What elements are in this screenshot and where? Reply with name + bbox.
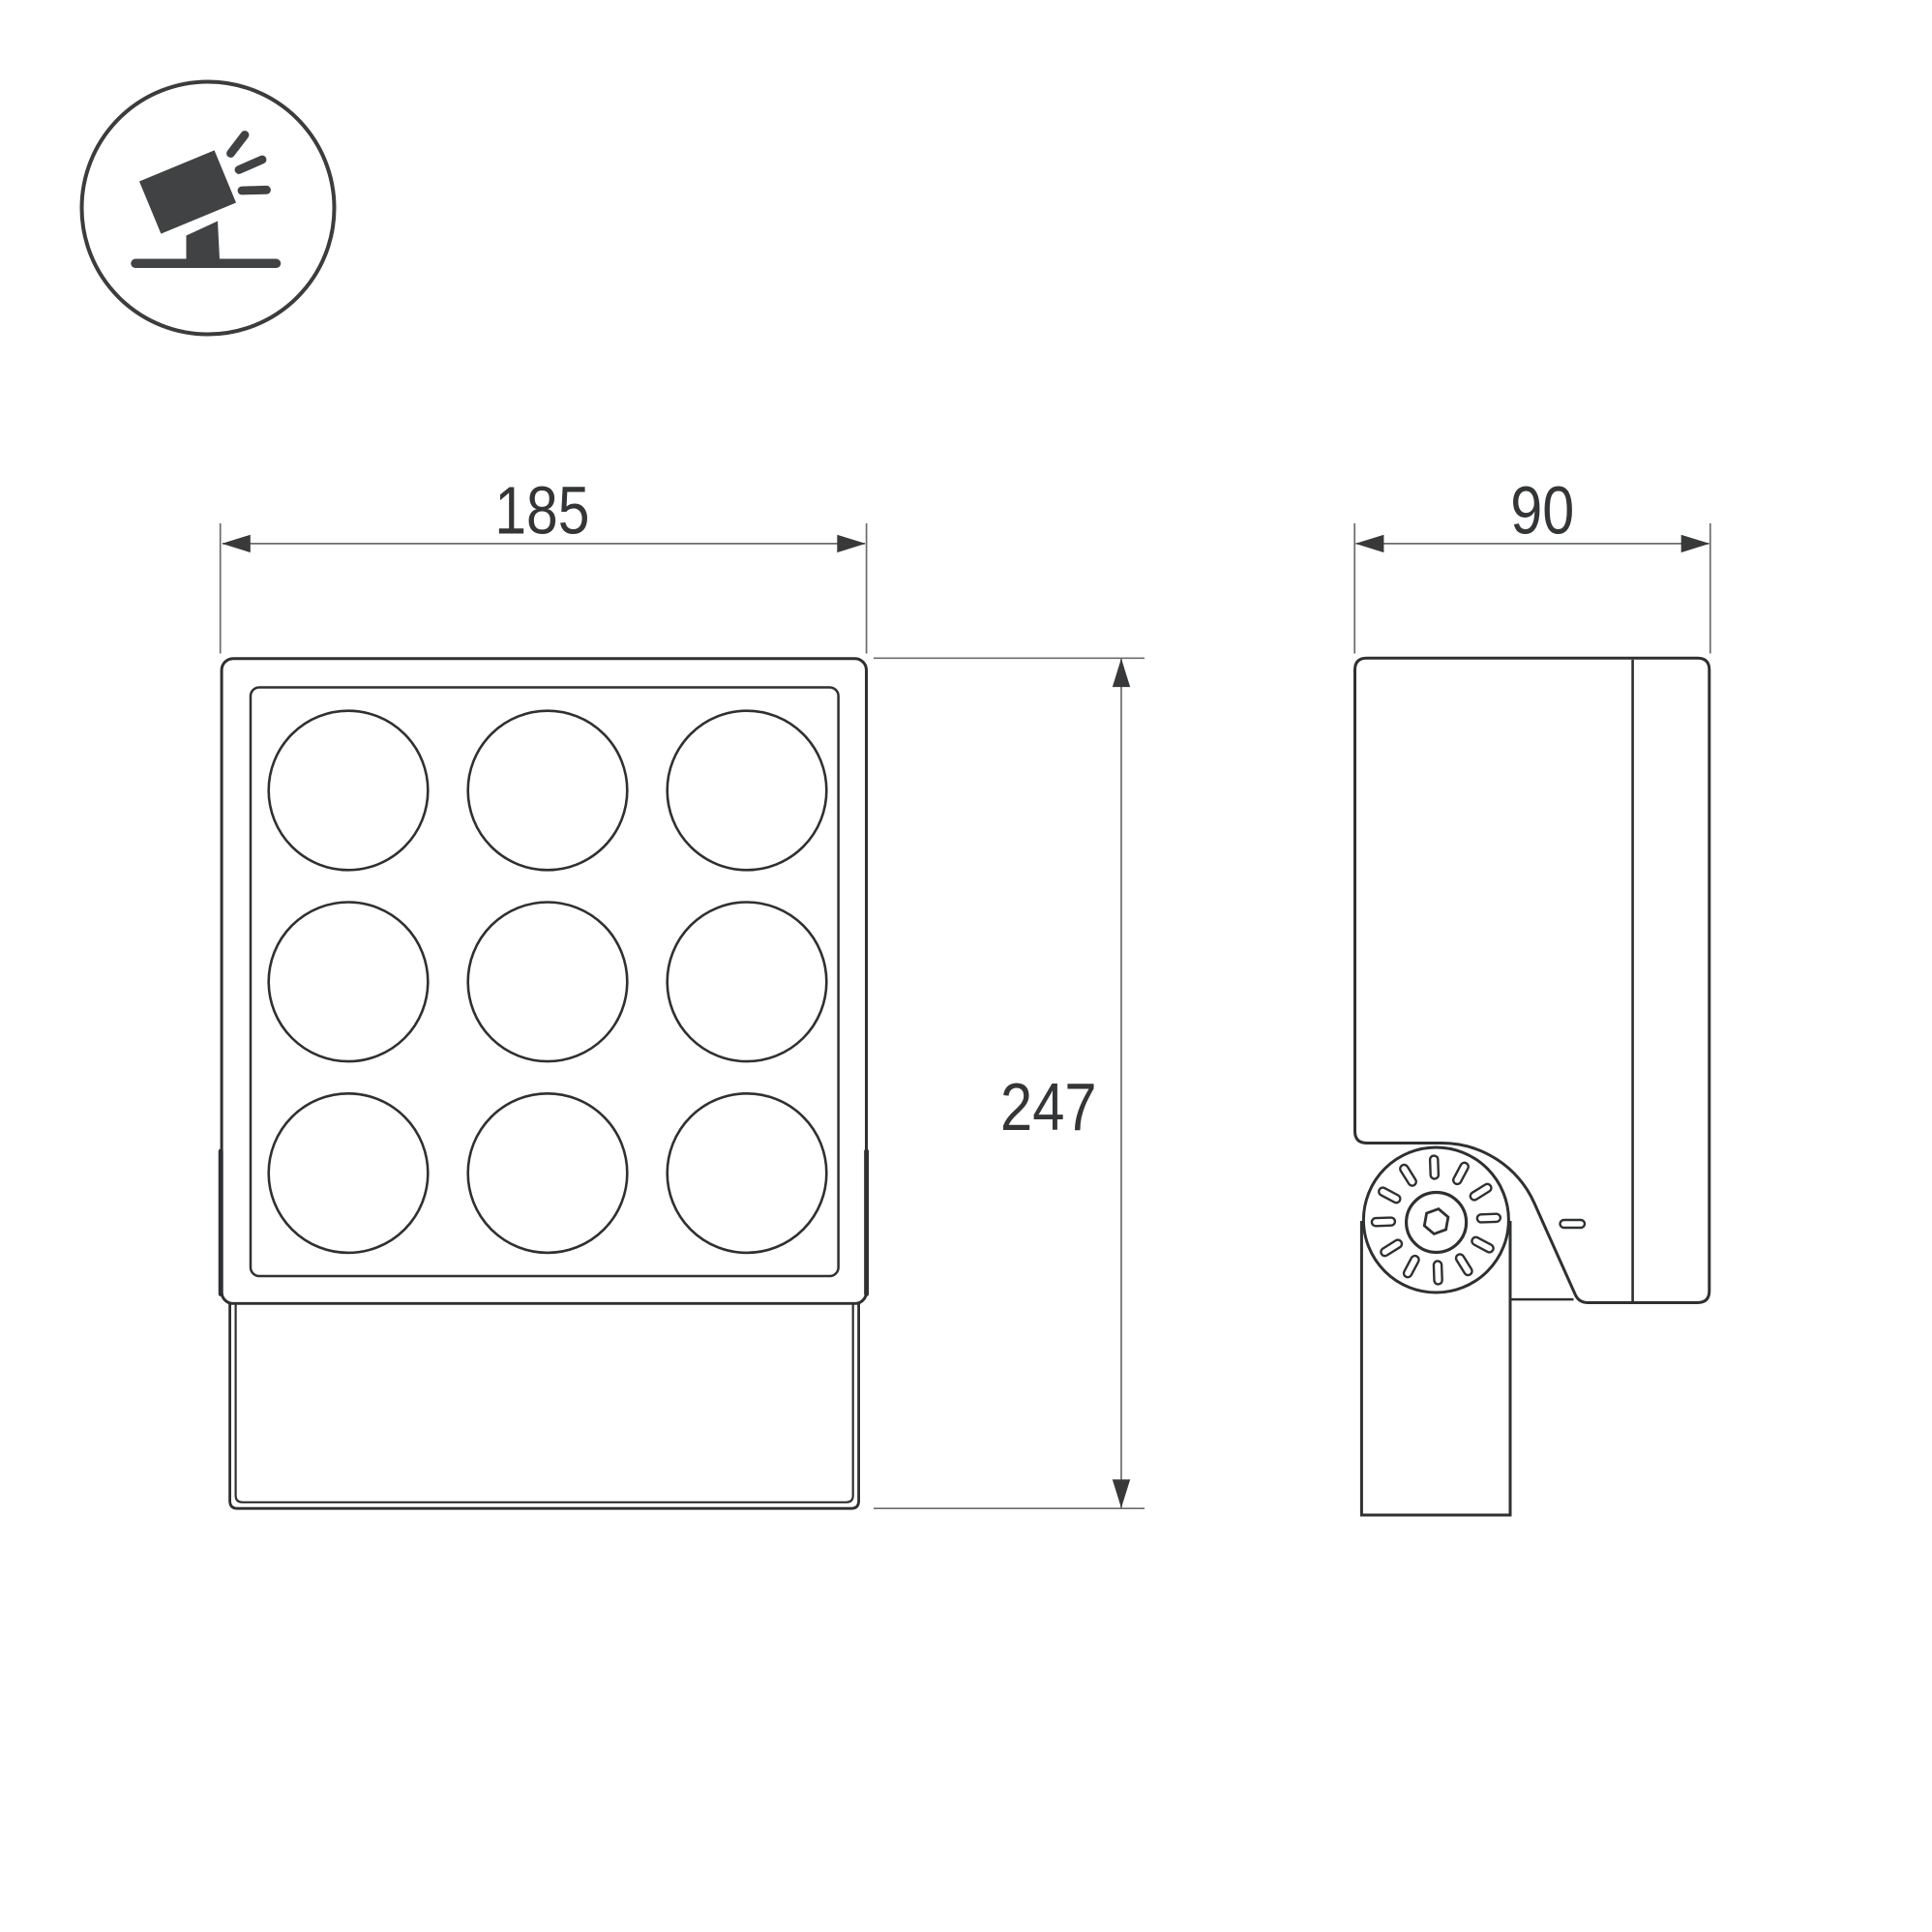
svg-text:185: 185 (494, 473, 589, 549)
svg-text:247: 247 (1000, 1069, 1097, 1144)
svg-text:90: 90 (1510, 472, 1574, 548)
